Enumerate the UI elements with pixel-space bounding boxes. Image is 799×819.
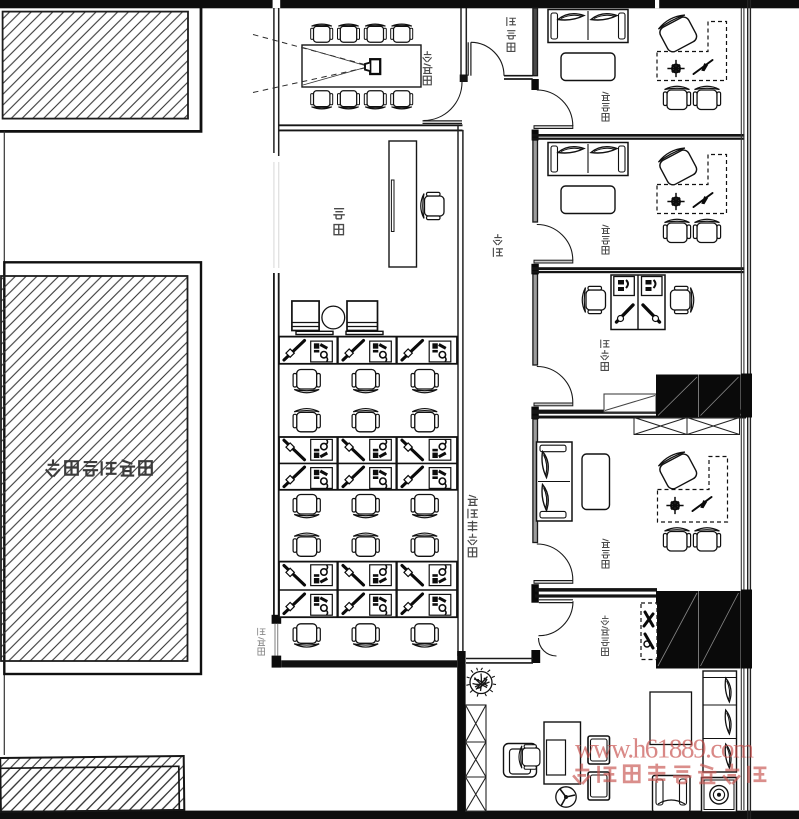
svg-text:www.h61889.com: www.h61889.com [575,734,754,764]
